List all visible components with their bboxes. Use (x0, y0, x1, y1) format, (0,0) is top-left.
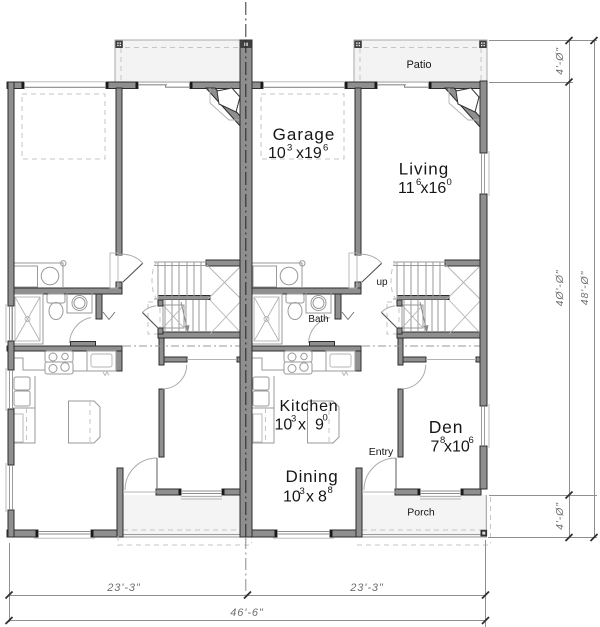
svg-text:Living: Living (399, 160, 449, 179)
svg-text:x19: x19 (296, 145, 322, 162)
svg-text:Patio: Patio (406, 59, 431, 71)
svg-text:Porch: Porch (407, 507, 435, 519)
svg-text:Entry: Entry (369, 446, 394, 458)
svg-text:6: 6 (323, 143, 328, 154)
svg-text:x: x (298, 417, 306, 434)
svg-text:x16: x16 (421, 180, 447, 197)
svg-text:6: 6 (469, 435, 474, 446)
svg-text:10: 10 (275, 417, 293, 434)
svg-text:4Ø'-Ø": 4Ø'-Ø" (554, 269, 566, 306)
svg-text:0: 0 (323, 413, 328, 424)
svg-text:3: 3 (300, 486, 305, 497)
svg-text:x10: x10 (444, 439, 470, 456)
svg-text:Garage: Garage (273, 125, 336, 144)
svg-text:7: 7 (431, 439, 440, 456)
svg-text:46'-6": 46'-6" (230, 607, 264, 619)
svg-text:Bath: Bath (308, 314, 328, 325)
svg-text:x: x (306, 489, 314, 506)
svg-text:48'-Ø": 48'-Ø" (579, 270, 591, 305)
svg-text:23'-3": 23'-3" (106, 582, 141, 594)
svg-text:3: 3 (287, 143, 292, 154)
svg-text:4'-Ø": 4'-Ø" (554, 502, 566, 530)
svg-text:8: 8 (328, 485, 333, 496)
svg-text:Den: Den (429, 417, 464, 437)
svg-text:3: 3 (291, 414, 296, 425)
svg-text:8: 8 (318, 489, 327, 506)
svg-text:0: 0 (447, 177, 452, 188)
svg-text:4'-Ø": 4'-Ø" (554, 47, 566, 75)
svg-text:up: up (376, 277, 388, 288)
svg-text:Dining: Dining (286, 467, 339, 486)
svg-text:10: 10 (268, 145, 286, 162)
svg-text:Kitchen: Kitchen (280, 398, 339, 415)
svg-text:23'-3": 23'-3" (349, 582, 384, 594)
svg-text:11: 11 (398, 180, 415, 197)
svg-text:10: 10 (283, 489, 301, 506)
